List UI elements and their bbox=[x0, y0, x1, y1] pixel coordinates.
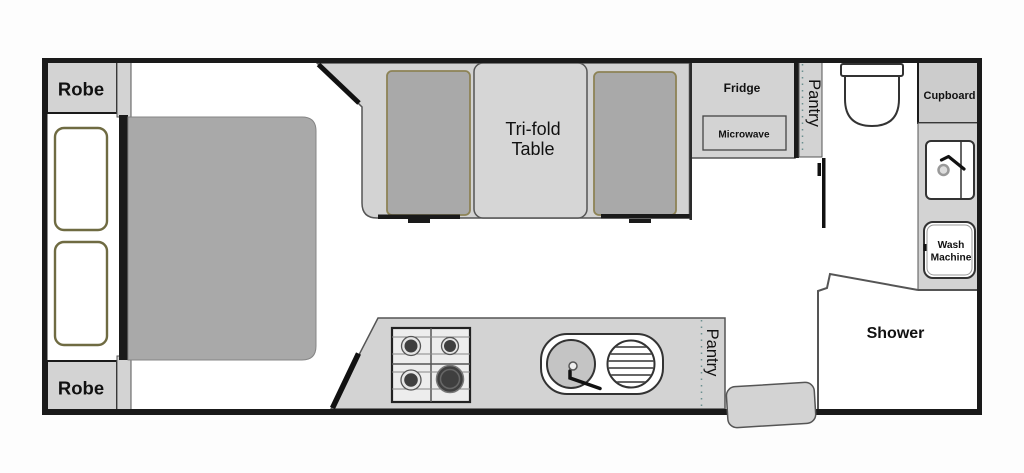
svg-text:Wash: Wash bbox=[938, 240, 965, 251]
svg-text:Pantry: Pantry bbox=[805, 79, 823, 127]
svg-text:Cupboard: Cupboard bbox=[924, 90, 976, 102]
svg-text:Shower: Shower bbox=[867, 325, 925, 342]
svg-text:Table: Table bbox=[511, 139, 554, 159]
svg-text:Microwave: Microwave bbox=[718, 130, 770, 141]
svg-text:Robe: Robe bbox=[58, 79, 104, 100]
svg-text:Tri-fold: Tri-fold bbox=[505, 119, 560, 139]
svg-text:Pantry: Pantry bbox=[703, 329, 721, 377]
svg-text:Fridge: Fridge bbox=[724, 81, 761, 95]
svg-text:Machine: Machine bbox=[931, 253, 972, 264]
svg-text:Robe: Robe bbox=[58, 378, 104, 399]
